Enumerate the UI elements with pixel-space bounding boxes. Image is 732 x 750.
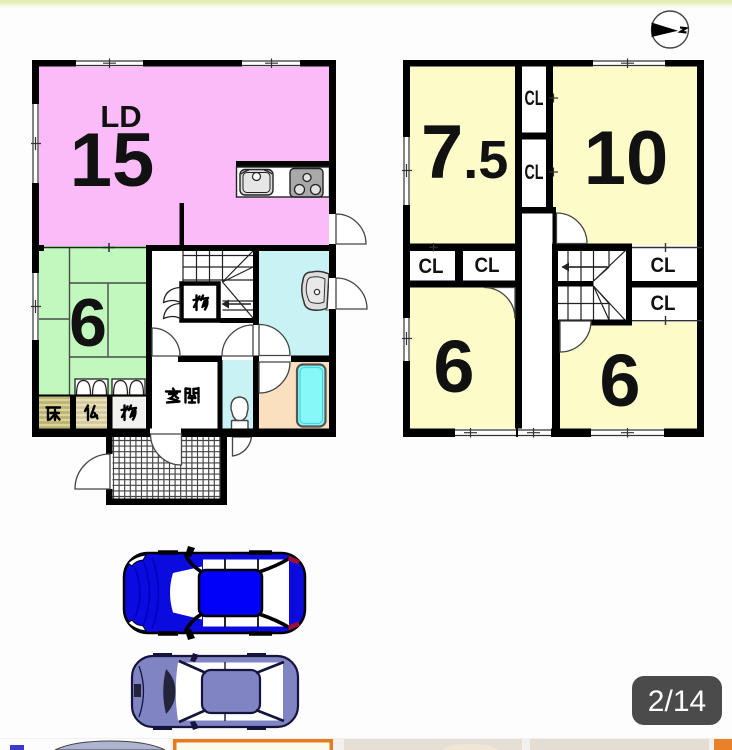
svg-text:CL: CL	[651, 292, 676, 315]
svg-text:CL: CL	[475, 254, 500, 277]
svg-text:6: 6	[433, 325, 474, 408]
svg-text:CL: CL	[651, 254, 676, 277]
svg-text:CL: CL	[525, 87, 544, 110]
svg-text:6: 6	[69, 285, 107, 361]
svg-text:6: 6	[599, 339, 640, 422]
svg-text:2/14: 2/14	[648, 685, 706, 718]
svg-text:CL: CL	[525, 161, 544, 184]
svg-text:CL: CL	[419, 255, 444, 278]
svg-text:15: 15	[70, 118, 155, 203]
svg-text:10: 10	[584, 116, 669, 201]
